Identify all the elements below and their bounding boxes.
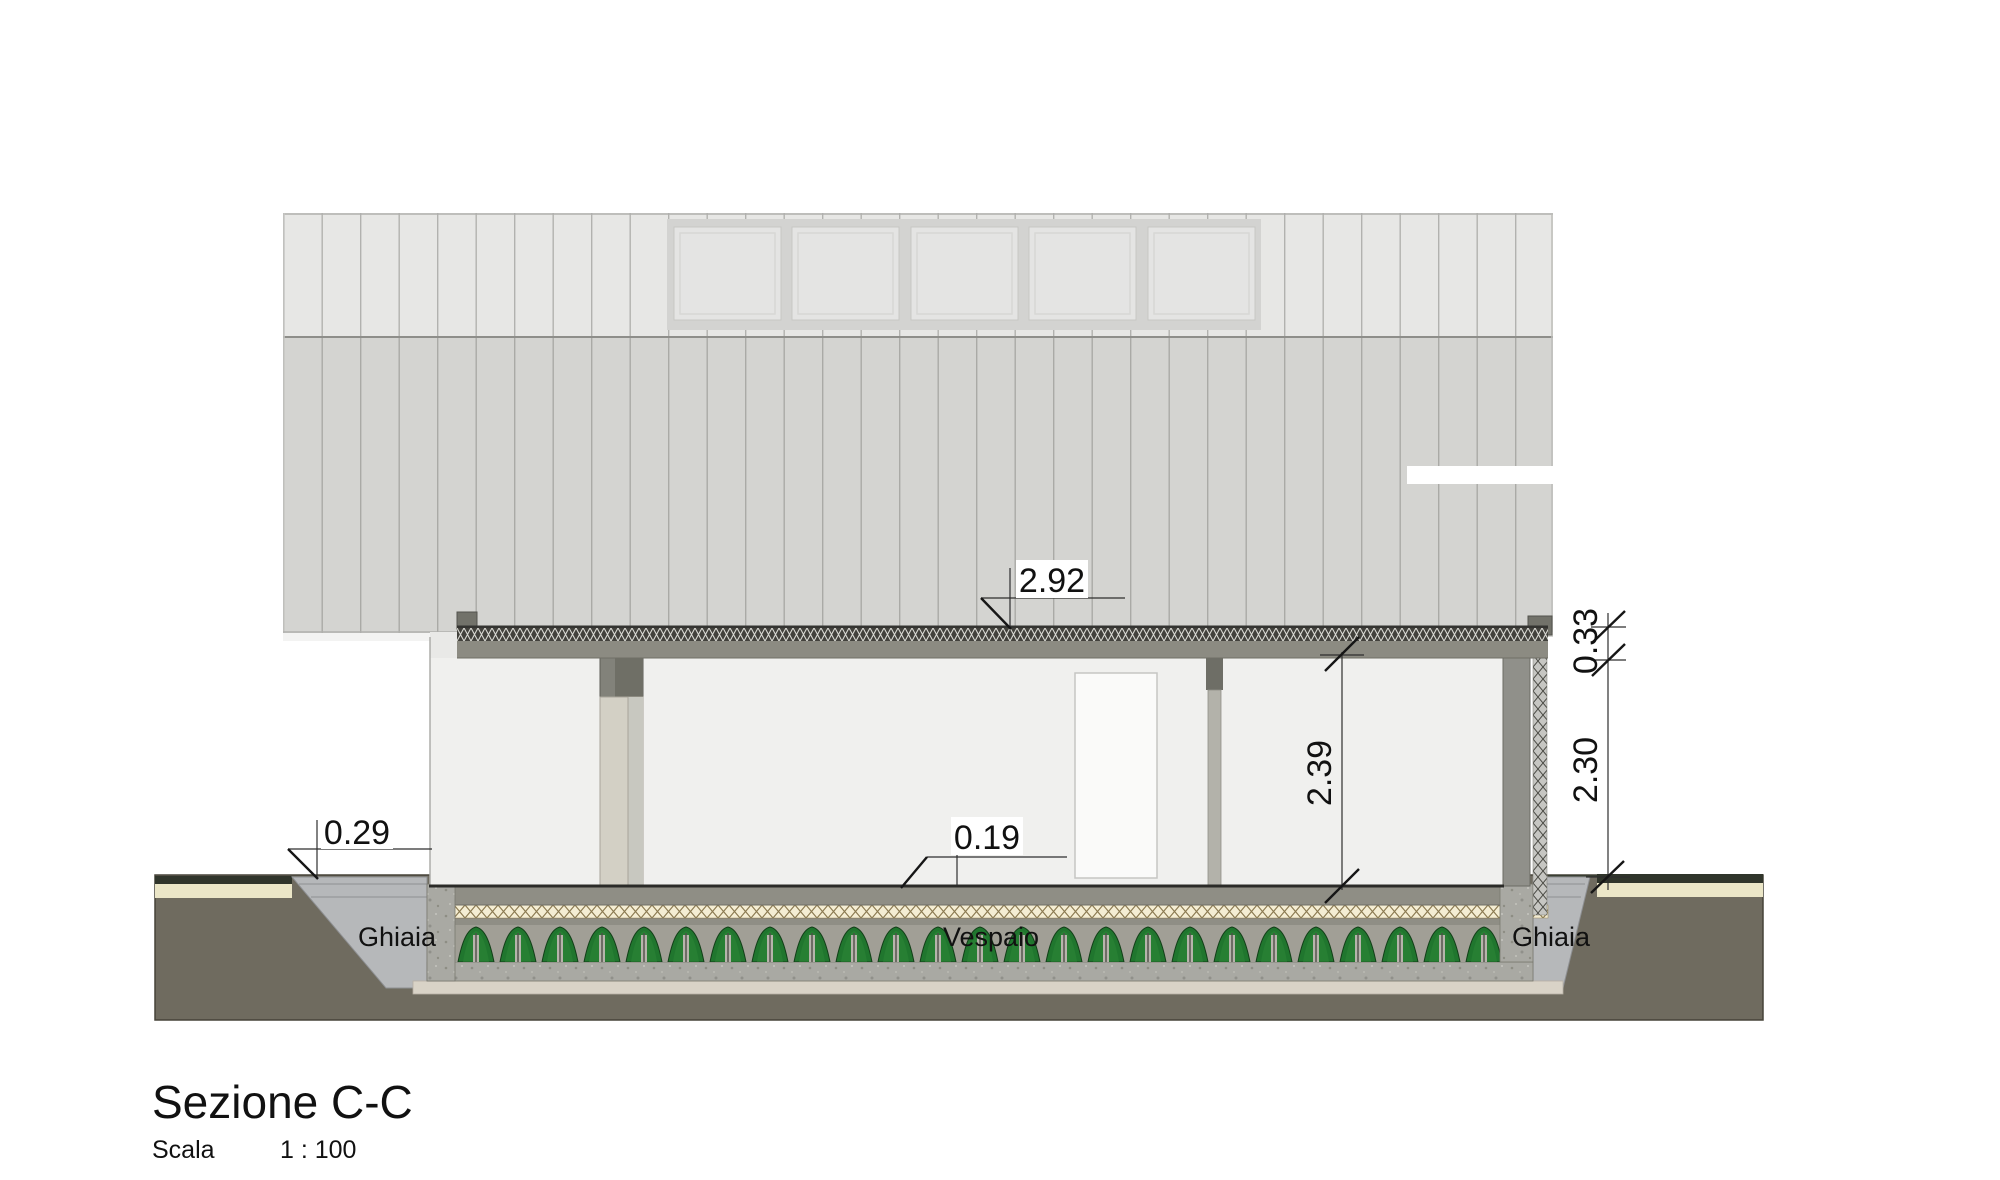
scale-value: 1 : 100 [280,1136,356,1164]
roof-insulation-hatch [457,628,1548,641]
label-crawl-space: Vespaio [943,922,1039,952]
overhang-shadow [283,633,430,641]
lean-concrete-footing [413,981,1563,994]
exterior-wall-face-strip [430,632,457,658]
dim-interior-height-value: 2.39 [1301,740,1339,806]
dim-underside-ground-value: 2.30 [1567,737,1605,803]
column-right [1206,658,1223,886]
scale-label: Scala [152,1136,215,1164]
label-gravel-right: Ghiaia [1512,922,1591,952]
column-shaft-shaded-half [628,697,643,886]
column-capital [1206,658,1223,690]
title-block: Sezione C-C Scala 1 : 100 [152,1076,413,1164]
upper-volume [283,213,1554,641]
floor-screed-band [430,888,1533,906]
window-pane [911,227,1018,320]
roof-top-line [457,626,1548,629]
label-gravel-left: Ghiaia [358,922,437,952]
dim-gravel-step-value: 0.29 [324,814,390,852]
window-pane [1029,227,1136,320]
door-panel [1075,673,1157,878]
cut-wall-right [1503,658,1530,886]
wall-insulation-right [1533,643,1547,915]
lower-storey [429,632,1547,915]
window-pane [792,227,899,320]
sand-layer-left [155,884,292,898]
dim-roof-top-value: 2.92 [1019,562,1085,600]
window-pane [1148,227,1255,320]
column-shaft [1208,690,1221,886]
column-left [600,658,643,886]
floor-insulation [432,905,1548,918]
window-pane [674,227,781,320]
dimension-right-stack: 0.33 2.30 [1567,608,1630,893]
clerestory-window-band [667,219,1261,330]
column-capital-dark-half [615,658,643,697]
topsoil-left [155,876,292,884]
topsoil-right [1597,874,1763,883]
facade-notch [1407,466,1554,484]
architectural-sheet: 2.92 0.19 0.29 2.39 0.33 2.30 Ghiaia Ve [0,0,2000,1180]
drawing-title: Sezione C-C [152,1076,413,1128]
dim-roof-thickness-value: 0.33 [1567,608,1605,674]
dim-floor-slab-value: 0.19 [954,819,1020,857]
roof-structure-band [457,641,1548,658]
dimension-gravel-step: 0.29 [288,812,432,879]
foundation-slab [427,962,1533,981]
section-drawing: 2.92 0.19 0.29 2.39 0.33 2.30 Ghiaia Ve [0,0,2000,1180]
sand-layer-right [1597,883,1763,897]
